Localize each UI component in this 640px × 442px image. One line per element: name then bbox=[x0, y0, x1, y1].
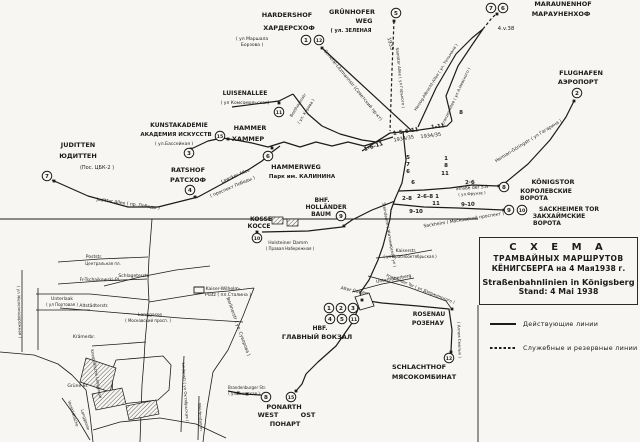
hbf-ponarth-line bbox=[296, 300, 362, 391]
svg-text:9: 9 bbox=[339, 214, 343, 220]
legend-label-reserve: Служебные и резервные линии bbox=[523, 344, 637, 352]
map-label: Центральная пл. bbox=[85, 261, 121, 266]
map-label: Altstädterstr. bbox=[79, 303, 108, 309]
stop-node bbox=[573, 100, 576, 103]
stop-node bbox=[278, 102, 281, 105]
map-label: 1 bbox=[444, 156, 448, 162]
route-terminus-6: 6 bbox=[263, 151, 273, 161]
svg-text:1: 1 bbox=[327, 306, 331, 312]
svg-text:6: 6 bbox=[266, 154, 270, 160]
map-label: ROSENAU bbox=[413, 311, 446, 318]
map-label: 6 bbox=[406, 169, 410, 175]
map-label: Cranzer Allee ( ул А.Невского ) bbox=[440, 66, 471, 126]
map-label: ЗАКХАЙМСКИЕ bbox=[533, 212, 586, 220]
map-label: КОРОЛЕВСКИЕ bbox=[520, 188, 572, 195]
map-label: Борзова ) bbox=[241, 42, 264, 48]
route-terminus-1: 1 bbox=[324, 303, 334, 313]
map-label: BHF. bbox=[314, 197, 329, 204]
svg-text:5: 5 bbox=[394, 11, 398, 17]
map-label: ВОРОТА bbox=[520, 195, 548, 202]
svg-text:6: 6 bbox=[501, 6, 505, 12]
svg-text:12: 12 bbox=[316, 38, 322, 44]
svg-text:2: 2 bbox=[575, 91, 579, 97]
map-label: Schlageterstr. bbox=[118, 273, 149, 279]
map-label: Grüne Br. bbox=[67, 383, 88, 389]
map-label: МАРАУНЕНХОФ bbox=[532, 10, 591, 18]
map-label: 8 bbox=[444, 163, 448, 169]
map-label: WEST bbox=[258, 411, 279, 419]
route-terminus-11: 11 bbox=[349, 314, 359, 324]
map-label: 9-10 bbox=[461, 202, 475, 208]
map-label: ( ул. ЗЕЛЕНАЯ bbox=[330, 28, 371, 34]
route-terminus-8: 8 bbox=[261, 392, 271, 402]
south-street bbox=[93, 418, 226, 438]
gruene-bruecke-street bbox=[0, 352, 93, 442]
map-label: АЭРОПОРТ bbox=[558, 78, 599, 86]
map-label: ( ул Комсомольская) bbox=[221, 100, 270, 106]
map-label: KOSSE bbox=[250, 216, 272, 223]
stop-node bbox=[227, 138, 230, 141]
route-terminus-5: 5 bbox=[337, 314, 347, 324]
map-label: Herman-Göringstr ( ул Гагарина ) bbox=[494, 118, 563, 164]
kosse-depot-1 bbox=[272, 217, 283, 224]
svg-text:7: 7 bbox=[489, 6, 493, 12]
stop-node bbox=[496, 13, 499, 16]
svg-text:9: 9 bbox=[507, 208, 511, 214]
kw-platz-box bbox=[194, 287, 204, 293]
route-terminus-4: 4 bbox=[325, 314, 335, 324]
route-terminus-3: 3 bbox=[348, 303, 358, 313]
route-terminus-6: 6 bbox=[498, 3, 508, 13]
map-label: Krämerbr. bbox=[73, 334, 95, 340]
map-label: HAMMERWEG bbox=[271, 163, 321, 171]
map-label: ( ул.Киевская ) bbox=[228, 391, 260, 396]
route-terminus-10: 10 bbox=[517, 205, 527, 215]
map-label: 1 bbox=[435, 194, 439, 200]
map-label: ( Правая Набережная ) bbox=[266, 246, 315, 251]
solid-line-icon bbox=[490, 323, 516, 324]
map-label: SCHLACHTHOF bbox=[392, 363, 446, 371]
map-label: Poststr. bbox=[86, 254, 102, 260]
map-label: ( ул.Бассейная ) bbox=[155, 140, 193, 147]
map-label: Brandenburger Str. bbox=[228, 385, 266, 390]
svg-text:8: 8 bbox=[502, 185, 506, 191]
svg-text:1: 1 bbox=[304, 38, 308, 44]
map-title-box: С Х Е М А ТРАМВАЙНЫХ МАРШРУТОВ КЁНИГСБЕР… bbox=[479, 237, 638, 305]
stop-node bbox=[53, 180, 56, 183]
map-canvas: 1125762891012113156471091234511815HARDER… bbox=[0, 0, 640, 442]
map-label: МЯСОКОМБИНАТ bbox=[392, 373, 457, 381]
map-label: КОССЕ bbox=[248, 223, 271, 230]
map-label: Friedländer Tor ( ул Дзержинского ) bbox=[386, 273, 456, 305]
dashed-line-icon bbox=[490, 347, 516, 349]
route-terminus-12: 12 bbox=[444, 353, 454, 363]
svg-text:11: 11 bbox=[351, 317, 357, 323]
svg-text:4: 4 bbox=[188, 188, 192, 194]
map-label: Platz ( пл.Сталина ) bbox=[205, 292, 251, 298]
map-legend: Действующие линии Служебные и резервные … bbox=[490, 320, 638, 368]
map-label: BAUM bbox=[311, 211, 331, 218]
map-label: FLUGHAFEN bbox=[559, 69, 603, 77]
map-label: Sackheim ( Московский проспект ) bbox=[423, 210, 505, 230]
stop-node bbox=[451, 308, 454, 311]
map-label: Juditter Allee ( пр. Победы ) bbox=[95, 196, 160, 211]
map-label: 2-6-8 bbox=[417, 194, 433, 200]
map-label: ХАММЕР bbox=[232, 135, 264, 143]
svg-text:3: 3 bbox=[351, 306, 355, 312]
svg-text:12: 12 bbox=[446, 356, 452, 362]
map-label: Fr-Tschaikowski-Pl. bbox=[80, 277, 121, 283]
route-terminus-15: 15 bbox=[286, 392, 296, 402]
svg-text:15: 15 bbox=[217, 134, 223, 140]
map-label: Парк им. КАЛИНИНА bbox=[269, 174, 336, 180]
stop-node bbox=[194, 196, 197, 199]
map-label: АКАДЕМИЯ ИСКУССТВ bbox=[140, 132, 211, 138]
route-terminus-12: 12 bbox=[314, 35, 324, 45]
map-label: ХАРДЕРСХОФ bbox=[263, 24, 315, 32]
route-terminus-8: 8 bbox=[499, 182, 509, 192]
route-terminus-7: 7 bbox=[486, 3, 496, 13]
map-label: OST bbox=[301, 411, 316, 419]
map-label: ( Аллея Смелых ) bbox=[456, 322, 462, 359]
map-title-de-2: Stand: 4 Mai 1938 bbox=[480, 287, 637, 296]
steindamm-line bbox=[360, 131, 406, 300]
map-label: HAMMER bbox=[234, 124, 267, 132]
stop-node bbox=[321, 47, 324, 50]
route-terminus-11: 11 bbox=[274, 107, 284, 117]
svg-text:5: 5 bbox=[340, 317, 344, 323]
route-terminus-3: 3 bbox=[184, 148, 194, 158]
svg-text:2: 2 bbox=[339, 306, 343, 312]
map-title-ru-1: С Х Е М А bbox=[480, 242, 637, 253]
map-label: 4.v.38 bbox=[498, 26, 515, 32]
route-terminus-9: 9 bbox=[504, 205, 514, 215]
berlinerstr-street bbox=[203, 288, 254, 442]
svg-text:10: 10 bbox=[254, 236, 260, 242]
maraunenhof-extension bbox=[483, 13, 497, 29]
map-label: 2-8 bbox=[402, 196, 412, 202]
map-label: РАТСХОФ bbox=[170, 176, 207, 184]
flughafen-line bbox=[505, 101, 574, 183]
route-terminus-2: 2 bbox=[572, 88, 582, 98]
map-label: ( ул Железнодорожная ) bbox=[16, 286, 23, 339]
map-label: 8 bbox=[459, 110, 463, 116]
route-terminus-1: 1 bbox=[301, 35, 311, 45]
map-label: MARAUNENHOF bbox=[534, 0, 591, 8]
map-label: HARDERSHOF bbox=[262, 11, 312, 19]
map-label: ВОРОТА bbox=[533, 220, 561, 227]
map-label: SACKHEIMER TOR bbox=[539, 206, 599, 213]
legend-item-active: Действующие линии bbox=[490, 320, 638, 328]
stop-node bbox=[271, 147, 274, 150]
kosse-depot-2 bbox=[287, 219, 298, 226]
map-label: 6 bbox=[411, 180, 415, 186]
map-label: 1934/35 bbox=[420, 132, 441, 140]
map-label: Vorstädtische bbox=[67, 400, 80, 428]
legend-label-active: Действующие линии bbox=[523, 320, 598, 328]
map-label: JUDITTEN bbox=[60, 141, 95, 149]
map-label: HOLLÄNDER bbox=[305, 204, 347, 211]
map-label: HBF. bbox=[312, 325, 327, 332]
map-label: 11 bbox=[432, 201, 440, 207]
stop-node bbox=[343, 225, 346, 228]
map-label: 1-6-11 bbox=[363, 141, 384, 153]
svg-text:3: 3 bbox=[187, 151, 191, 157]
route-terminus-10: 10 bbox=[252, 233, 262, 243]
svg-text:7: 7 bbox=[45, 174, 49, 180]
map-label: 9-10 bbox=[409, 209, 423, 215]
map-label: ЮДИТТЕН bbox=[59, 152, 97, 160]
map-label: Kaiser-Wilhelm- bbox=[206, 286, 241, 292]
map-title-de-1: Straßenbahnlinien in Königsberg bbox=[480, 277, 637, 287]
map-label: KÖNIGSTOR bbox=[531, 177, 574, 186]
svg-text:11: 11 bbox=[276, 110, 282, 116]
route-terminus-4: 4 bbox=[185, 185, 195, 195]
route-terminus-5: 5 bbox=[391, 8, 401, 18]
stop-node bbox=[361, 299, 364, 302]
route-terminus-9: 9 bbox=[336, 211, 346, 221]
map-label: WEG bbox=[356, 17, 373, 25]
map-label: ( ул Краснооктябрьская ) bbox=[383, 254, 437, 259]
map-label: РОЗЕНАУ bbox=[412, 320, 445, 327]
koenigsberg-tram-map: 1125762891012113156471091234511815HARDER… bbox=[0, 0, 640, 442]
map-label: ( Московский просп. ) bbox=[125, 318, 171, 323]
stop-node bbox=[393, 20, 396, 23]
svg-text:15: 15 bbox=[288, 395, 294, 401]
map-label: 5 bbox=[406, 155, 410, 161]
map-label: LUISENALLEE bbox=[223, 90, 268, 97]
route-terminus-7: 7 bbox=[42, 171, 52, 181]
map-label: 11 bbox=[441, 171, 449, 177]
map-label: Samitter Allee ( ул Горького ) bbox=[395, 47, 406, 108]
svg-text:4: 4 bbox=[328, 317, 332, 323]
stop-node bbox=[295, 390, 298, 393]
map-label: 7 bbox=[406, 162, 410, 168]
map-label: General-Litzmannstr (Советский пр-кт) bbox=[322, 48, 384, 123]
legend-item-reserve: Служебные и резервные линии bbox=[490, 344, 638, 352]
kraemer-street bbox=[92, 342, 146, 346]
map-label: ПОНАРТ bbox=[270, 420, 301, 428]
map-label: PONARTH bbox=[266, 403, 301, 411]
map-title-ru-3: КЁНИГСБЕРГА на 4 Мая1938 г. bbox=[480, 264, 637, 273]
map-label: GRÜNHOFER bbox=[329, 7, 375, 16]
map-label: ( ул Маршала bbox=[236, 36, 268, 42]
map-label: ( ул.Фрунзе ) bbox=[458, 190, 486, 197]
map-label: RATSHOF bbox=[171, 166, 205, 174]
map-label: ГЛАВНЫЙ ВОКЗАЛ bbox=[282, 332, 352, 341]
map-label: KUNSTAKADEMIE bbox=[150, 122, 208, 129]
svg-text:8: 8 bbox=[264, 395, 268, 401]
route-terminus-2: 2 bbox=[336, 303, 346, 313]
svg-text:10: 10 bbox=[519, 208, 525, 214]
map-title-ru-2: ТРАМВАЙНЫХ МАРШРУТОВ bbox=[480, 254, 637, 263]
map-label: ( ул Портовая ) bbox=[46, 302, 78, 307]
route-terminus-15: 15 bbox=[215, 131, 225, 141]
map-label: (Пос. ЦБК-2 ) bbox=[80, 165, 114, 171]
